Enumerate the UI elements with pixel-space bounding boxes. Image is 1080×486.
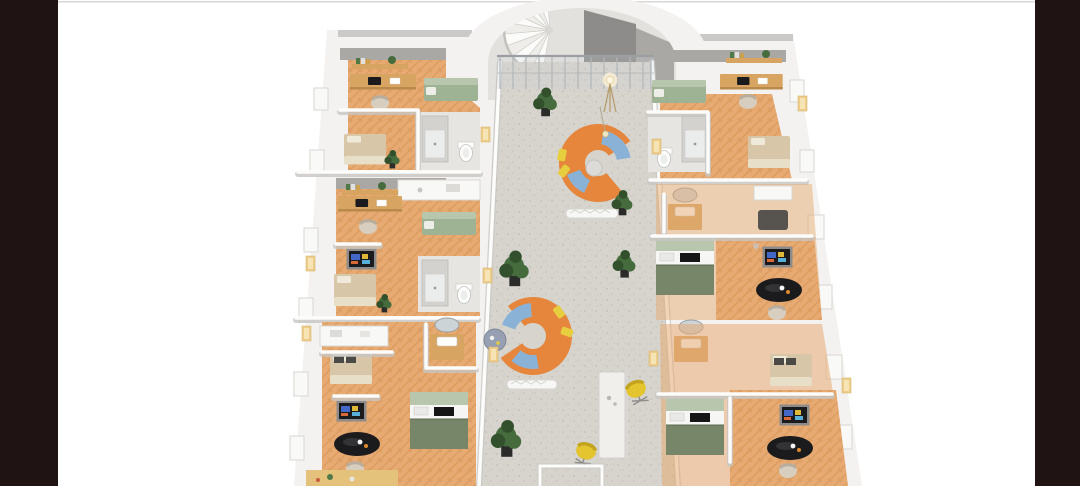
window-light <box>302 326 311 341</box>
kitchenette <box>410 392 468 449</box>
dining-table <box>767 436 813 460</box>
office-chair <box>359 220 377 234</box>
sink-vanity <box>430 318 464 360</box>
single-bed <box>334 274 376 306</box>
window-light <box>481 127 490 142</box>
single-bed <box>748 136 790 168</box>
dining-chair <box>768 306 786 320</box>
letterbox-right <box>1035 0 1080 486</box>
window-light <box>306 256 315 271</box>
sofa-inner-table <box>586 160 602 176</box>
standing-table <box>599 372 628 458</box>
dining-table <box>756 278 802 302</box>
unit-r3 <box>649 324 851 486</box>
work-desk <box>720 74 783 90</box>
shower <box>422 116 448 162</box>
single-bed <box>344 134 386 164</box>
wall-tv <box>347 249 377 270</box>
office-chair <box>739 95 757 109</box>
window-light <box>649 351 658 366</box>
dark-sofa <box>758 210 788 230</box>
shower <box>422 260 448 306</box>
window-light <box>798 96 807 111</box>
work-desk <box>350 74 416 90</box>
kitchen-counter <box>398 180 480 200</box>
kitchenette <box>666 398 724 455</box>
staircase-railing <box>497 56 654 89</box>
wall-tv <box>780 405 810 426</box>
dining-table <box>334 432 380 456</box>
window-light <box>489 347 498 362</box>
window-light <box>842 378 851 393</box>
wall-tv <box>763 247 793 268</box>
green-sofa-bed <box>652 80 706 103</box>
green-sofa-bed <box>422 212 476 235</box>
green-sofa-bed <box>424 78 478 101</box>
office-chair <box>371 96 389 110</box>
window-light <box>483 268 492 283</box>
work-desk <box>338 196 402 212</box>
floor-plan-render <box>0 0 1080 486</box>
window-light <box>652 139 661 154</box>
white-desk <box>754 186 792 200</box>
building <box>290 0 862 486</box>
unit-l3 <box>306 318 498 486</box>
screenshot-frame <box>0 0 1080 486</box>
left-wing-top-wall <box>338 30 472 37</box>
letterbox-left <box>0 0 58 486</box>
wall-tv <box>337 401 367 422</box>
shower <box>682 116 708 162</box>
kitchenette <box>656 238 714 295</box>
dining-chair <box>779 464 797 478</box>
